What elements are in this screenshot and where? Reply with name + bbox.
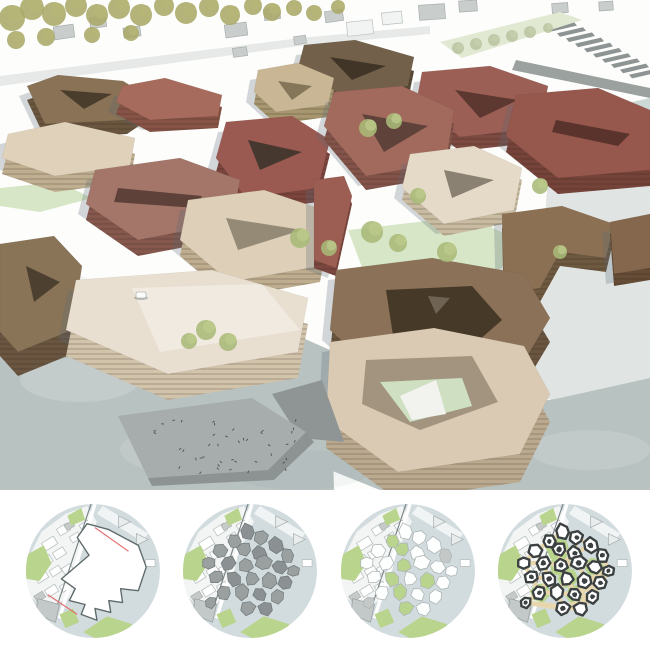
building-roof bbox=[610, 214, 650, 274]
tree-highlight bbox=[269, 4, 280, 15]
tree-highlight bbox=[326, 241, 336, 251]
tree-highlight bbox=[182, 3, 196, 17]
context-house bbox=[53, 24, 75, 40]
tree-highlight bbox=[391, 114, 401, 124]
plaza-wash bbox=[530, 430, 650, 470]
building-outline bbox=[551, 584, 563, 600]
tree-highlight bbox=[415, 189, 425, 199]
person-mark bbox=[271, 453, 272, 456]
tree-highlight bbox=[225, 334, 236, 345]
tree-highlight bbox=[558, 246, 567, 255]
concept-diagram-strip bbox=[0, 490, 650, 650]
context-house bbox=[294, 35, 307, 45]
tree-highlight bbox=[128, 26, 138, 36]
tree-highlight bbox=[395, 235, 406, 246]
context-house bbox=[552, 3, 569, 14]
tree-highlight bbox=[528, 26, 535, 33]
diagram-plots-green bbox=[339, 502, 477, 640]
step-plots-green bbox=[341, 504, 475, 638]
building-outline bbox=[518, 558, 529, 569]
tree-highlight bbox=[444, 243, 456, 255]
context-block bbox=[381, 11, 402, 25]
map-block bbox=[145, 560, 155, 567]
bldg-front-beige-court bbox=[318, 328, 550, 490]
tree-highlight bbox=[291, 1, 301, 11]
person-mark bbox=[248, 471, 249, 474]
context-house bbox=[599, 1, 614, 11]
tree-highlight bbox=[474, 38, 481, 45]
tree-highlight bbox=[297, 229, 309, 241]
diagram-buildings-paths bbox=[496, 502, 634, 640]
step-massing bbox=[183, 504, 317, 638]
diagram-site-boundary bbox=[24, 502, 162, 640]
step-site-boundary bbox=[26, 504, 160, 638]
map-block bbox=[617, 560, 627, 567]
context-house bbox=[232, 47, 247, 58]
massing-polygon bbox=[287, 565, 299, 576]
tree-highlight bbox=[510, 30, 517, 37]
context-block bbox=[346, 20, 373, 37]
tree-highlight bbox=[456, 42, 463, 49]
tree-highlight bbox=[492, 34, 499, 41]
diagram-massing bbox=[181, 502, 319, 640]
building-outline bbox=[556, 524, 569, 539]
tree-highlight bbox=[203, 321, 215, 333]
tree-highlight bbox=[537, 179, 547, 189]
tree-highlight bbox=[89, 28, 99, 38]
tree-highlight bbox=[546, 23, 552, 29]
context-house bbox=[419, 4, 446, 21]
tree-highlight bbox=[368, 222, 382, 236]
car-icon bbox=[136, 292, 146, 298]
context-house bbox=[459, 0, 478, 12]
building-outline bbox=[573, 603, 586, 616]
step-buildings-paths bbox=[498, 504, 632, 638]
tree-highlight bbox=[365, 120, 376, 131]
presentation-board bbox=[0, 0, 650, 650]
massing-polygon bbox=[203, 557, 215, 569]
tree-highlight bbox=[137, 5, 151, 19]
tree-highlight bbox=[336, 1, 345, 10]
tree-highlight bbox=[186, 334, 196, 344]
plot-polygon bbox=[445, 565, 457, 576]
masterplan-aerial-render bbox=[0, 0, 650, 490]
map-block bbox=[460, 560, 470, 567]
render-canvas bbox=[0, 0, 650, 490]
map-block bbox=[302, 560, 312, 567]
tree-highlight bbox=[227, 6, 239, 18]
tree-highlight bbox=[50, 3, 65, 18]
building-outline bbox=[529, 545, 543, 557]
tree-highlight bbox=[93, 5, 107, 19]
tree-highlight bbox=[311, 6, 321, 16]
tree-highlight bbox=[43, 29, 54, 40]
plot-polygon bbox=[361, 557, 373, 569]
tree-highlight bbox=[13, 32, 24, 43]
